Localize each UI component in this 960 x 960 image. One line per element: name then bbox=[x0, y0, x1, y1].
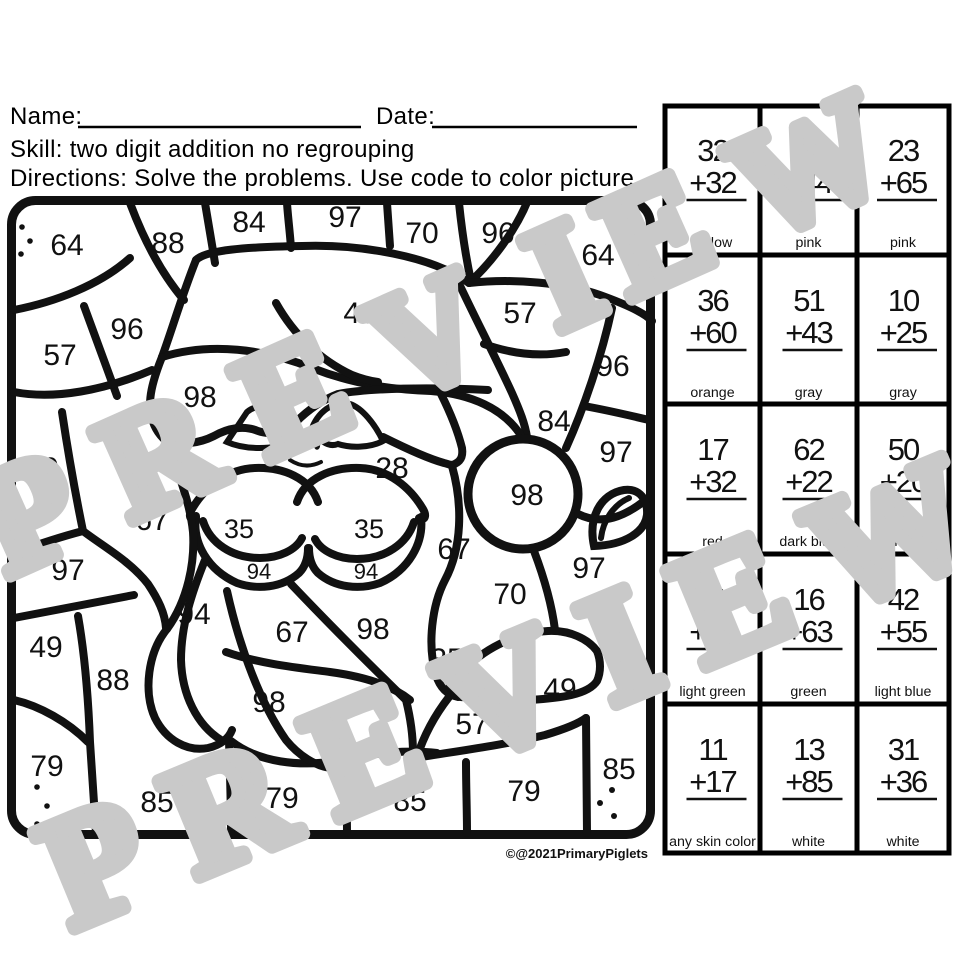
svg-text:11: 11 bbox=[698, 732, 727, 767]
svg-text:+85: +85 bbox=[785, 764, 832, 799]
svg-text:97: 97 bbox=[599, 436, 632, 469]
svg-text:88: 88 bbox=[151, 227, 184, 260]
svg-text:96: 96 bbox=[596, 350, 629, 383]
svg-text:94: 94 bbox=[177, 598, 210, 631]
svg-text:any skin color: any skin color bbox=[669, 834, 756, 850]
svg-text:10: 10 bbox=[888, 283, 920, 318]
svg-text:+43: +43 bbox=[785, 315, 832, 350]
svg-text:orange: orange bbox=[690, 385, 734, 401]
svg-text:51: 51 bbox=[793, 283, 824, 318]
svg-text:light blue: light blue bbox=[875, 684, 932, 700]
svg-text:97: 97 bbox=[328, 201, 361, 234]
svg-text:98: 98 bbox=[510, 479, 543, 512]
svg-text:84: 84 bbox=[232, 206, 265, 239]
svg-text:+60: +60 bbox=[689, 315, 737, 350]
svg-text:Skill: two digit addition no r: Skill: two digit addition no regrouping bbox=[10, 136, 415, 163]
svg-text:Date:: Date: bbox=[376, 103, 435, 130]
svg-text:64: 64 bbox=[50, 229, 83, 262]
svg-text:35: 35 bbox=[224, 514, 254, 544]
svg-text:84: 84 bbox=[537, 405, 570, 438]
svg-text:gray: gray bbox=[889, 385, 918, 401]
svg-text:+17: +17 bbox=[689, 764, 736, 799]
svg-text:96: 96 bbox=[110, 313, 143, 346]
svg-text:©@2021PrimaryPiglets: ©@2021PrimaryPiglets bbox=[506, 846, 648, 861]
svg-text:94: 94 bbox=[247, 559, 271, 584]
svg-text:67: 67 bbox=[437, 533, 470, 566]
svg-text:white: white bbox=[791, 834, 825, 850]
svg-text:green: green bbox=[790, 684, 826, 700]
svg-text:98: 98 bbox=[356, 613, 389, 646]
svg-text:67: 67 bbox=[275, 616, 308, 649]
svg-text:85: 85 bbox=[602, 753, 635, 786]
svg-text:Name:: Name: bbox=[10, 103, 82, 130]
svg-text:35: 35 bbox=[354, 514, 384, 544]
svg-text:pink: pink bbox=[890, 235, 917, 251]
svg-text:gray: gray bbox=[795, 385, 824, 401]
svg-text:31: 31 bbox=[888, 732, 919, 767]
svg-text:62: 62 bbox=[793, 432, 824, 467]
svg-text:88: 88 bbox=[96, 664, 129, 697]
svg-text:79: 79 bbox=[30, 750, 63, 783]
svg-text:+36: +36 bbox=[880, 764, 927, 799]
svg-text:57: 57 bbox=[43, 339, 76, 372]
svg-text:17: 17 bbox=[697, 432, 728, 467]
svg-text:white: white bbox=[885, 834, 919, 850]
svg-text:49: 49 bbox=[29, 631, 62, 664]
svg-text:94: 94 bbox=[354, 559, 378, 584]
svg-text:+25: +25 bbox=[880, 315, 927, 350]
svg-text:Directions: Solve the problems: Directions: Solve the problems. Use code… bbox=[10, 165, 641, 192]
svg-text:+32: +32 bbox=[689, 464, 736, 499]
svg-text:28: 28 bbox=[375, 452, 408, 485]
svg-text:13: 13 bbox=[793, 732, 824, 767]
